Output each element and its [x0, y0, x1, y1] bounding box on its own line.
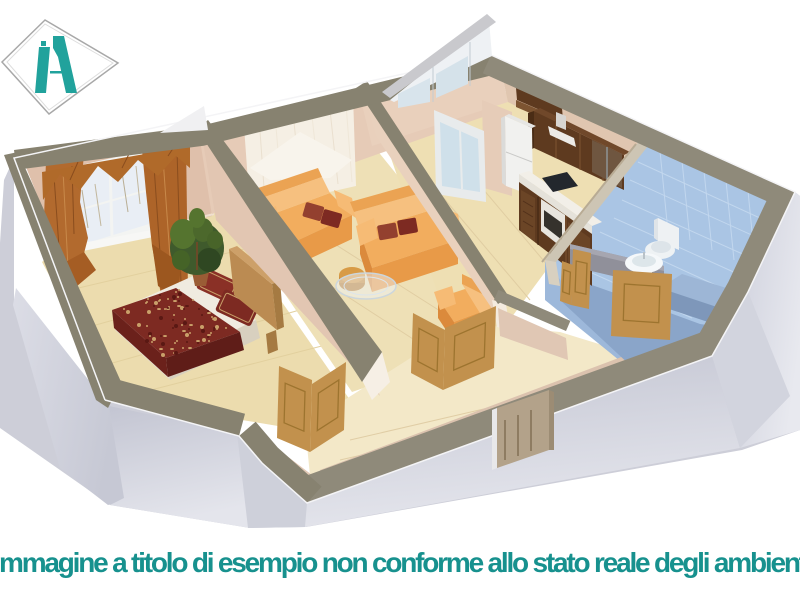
svg-text:mmagine a titolo di esempio no: mmagine a titolo di esempio non conforme…: [0, 547, 800, 578]
